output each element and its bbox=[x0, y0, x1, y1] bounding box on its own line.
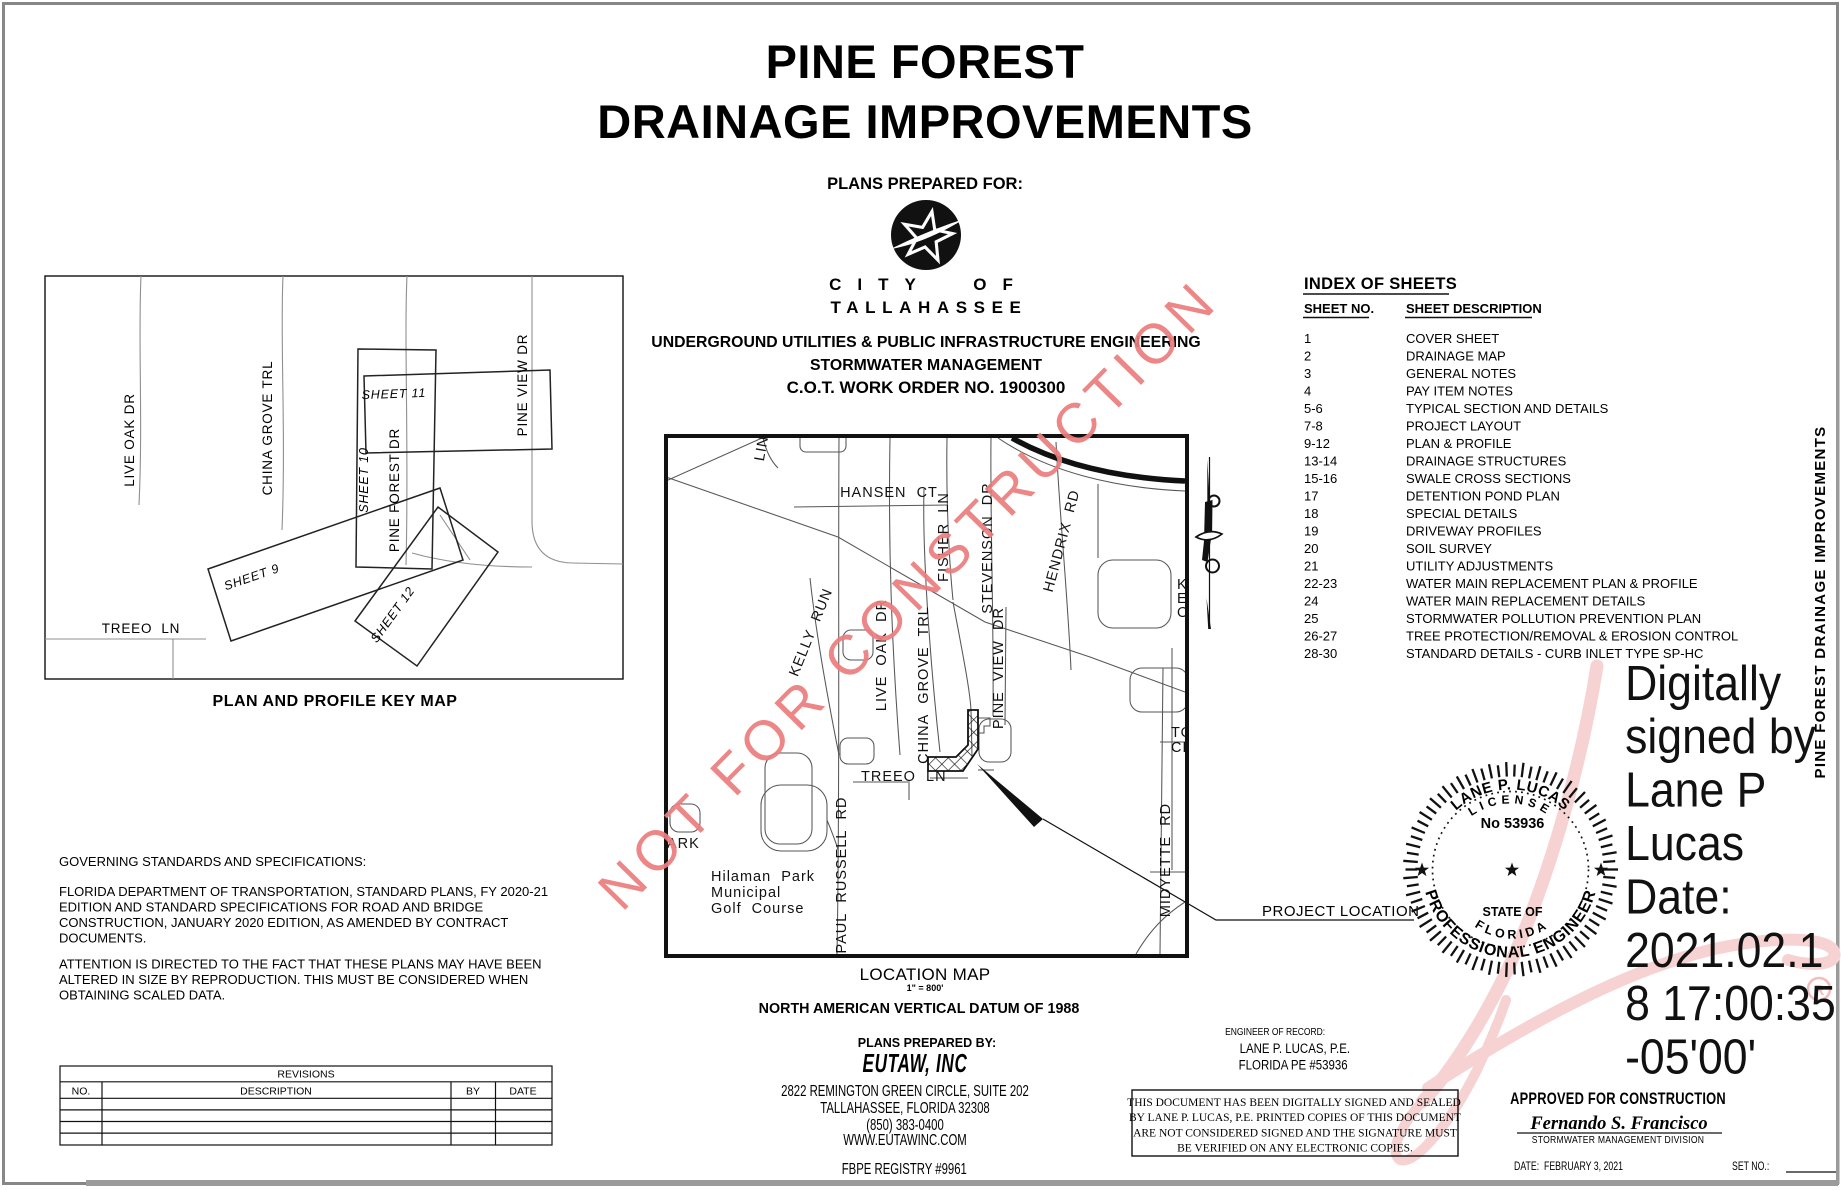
svg-text:26-27: 26-27 bbox=[1304, 629, 1337, 644]
svg-text:FBPE REGISTRY #9961: FBPE REGISTRY #9961 bbox=[842, 1159, 967, 1177]
svg-text:SOIL SURVEY: SOIL SURVEY bbox=[1406, 541, 1492, 556]
svg-text:ARE NOT CONSIDERED SIGNED AND: ARE NOT CONSIDERED SIGNED AND THE SIGNAT… bbox=[1133, 1127, 1457, 1139]
svg-text:DOCUMENTS.: DOCUMENTS. bbox=[59, 931, 146, 946]
svg-text:EUTAW, INC: EUTAW, INC bbox=[862, 1048, 967, 1078]
svg-text:INDEX OF SHEETS: INDEX OF SHEETS bbox=[1304, 275, 1457, 293]
svg-text:18: 18 bbox=[1304, 506, 1318, 521]
svg-text:19: 19 bbox=[1304, 524, 1318, 539]
svg-text:PAUL RUSSELL RD: PAUL RUSSELL RD bbox=[834, 797, 850, 954]
svg-text:Hilaman Park: Hilaman Park bbox=[711, 869, 815, 885]
svg-text:25: 25 bbox=[1304, 611, 1318, 626]
svg-text:24: 24 bbox=[1304, 594, 1318, 609]
svg-text:PROJECT LAYOUT: PROJECT LAYOUT bbox=[1406, 419, 1521, 434]
svg-text:NORTH AMERICAN VERTICAL DATUM: NORTH AMERICAN VERTICAL DATUM OF 1988 bbox=[759, 1001, 1080, 1017]
svg-text:SHEET DESCRIPTION: SHEET DESCRIPTION bbox=[1406, 301, 1542, 316]
svg-text:PROJECT LOCATION: PROJECT LOCATION bbox=[1262, 903, 1419, 920]
svg-text:WATER MAIN REPLACEMENT PLAN &: WATER MAIN REPLACEMENT PLAN & PROFILE bbox=[1406, 576, 1698, 591]
svg-text:7-8: 7-8 bbox=[1304, 419, 1323, 434]
svg-text:SET NO.:: SET NO.: bbox=[1732, 1160, 1769, 1174]
svg-text:TALLAHASSEE: TALLAHASSEE bbox=[831, 298, 1028, 317]
svg-text:No 53936: No 53936 bbox=[1481, 816, 1545, 832]
svg-text:1: 1 bbox=[1304, 331, 1311, 346]
svg-text:TYPICAL SECTION AND DETAILS: TYPICAL SECTION AND DETAILS bbox=[1406, 401, 1609, 416]
svg-text:FLORIDA DEPARTMENT OF TRANSPOR: FLORIDA DEPARTMENT OF TRANSPORTATION, ST… bbox=[59, 884, 548, 899]
svg-text:HANSEN CT: HANSEN CT bbox=[840, 485, 938, 501]
svg-text:2: 2 bbox=[1304, 349, 1311, 364]
svg-text:WATER MAIN REPLACEMENT DETAILS: WATER MAIN REPLACEMENT DETAILS bbox=[1406, 594, 1646, 609]
svg-text:DATE: FEBRUARY 3, 2021: DATE: FEBRUARY 3, 2021 bbox=[1514, 1160, 1623, 1174]
svg-text:15-16: 15-16 bbox=[1304, 471, 1337, 486]
svg-text:PINE FOREST: PINE FOREST bbox=[766, 35, 1085, 88]
svg-text:CITY OF: CITY OF bbox=[829, 275, 1029, 294]
svg-text:PINE VIEW DR: PINE VIEW DR bbox=[515, 334, 530, 437]
svg-text:TREEO LN: TREEO LN bbox=[861, 769, 947, 785]
svg-text:3: 3 bbox=[1304, 366, 1311, 381]
svg-text:1" = 800': 1" = 800' bbox=[907, 983, 944, 993]
svg-text:8 17:00:35: 8 17:00:35 bbox=[1625, 976, 1836, 1030]
svg-text:17: 17 bbox=[1304, 489, 1318, 504]
svg-text:ALTERED IN SIZE BY REPRODUCTIO: ALTERED IN SIZE BY REPRODUCTION. THIS MU… bbox=[59, 972, 528, 987]
svg-text:Lane P: Lane P bbox=[1625, 763, 1766, 817]
svg-text:APPROVED FOR CONSTRUCTION: APPROVED FOR CONSTRUCTION bbox=[1510, 1091, 1726, 1109]
svg-text:LIVE OAK DR: LIVE OAK DR bbox=[122, 393, 137, 487]
svg-text:28-30: 28-30 bbox=[1304, 646, 1337, 661]
svg-text:STATE OF: STATE OF bbox=[1483, 905, 1543, 919]
svg-text:THIS DOCUMENT HAS BEEN DIGITAL: THIS DOCUMENT HAS BEEN DIGITALLY SIGNED … bbox=[1127, 1097, 1461, 1109]
svg-text:9-12: 9-12 bbox=[1304, 436, 1330, 451]
svg-text:13-14: 13-14 bbox=[1304, 454, 1337, 469]
svg-text:Date:: Date: bbox=[1625, 869, 1732, 923]
svg-text:UTILITY ADJUSTMENTS: UTILITY ADJUSTMENTS bbox=[1406, 559, 1553, 574]
svg-text:C.O.T. WORK ORDER NO. 1900300: C.O.T. WORK ORDER NO. 1900300 bbox=[787, 378, 1066, 397]
svg-text:SPECIAL DETAILS: SPECIAL DETAILS bbox=[1406, 506, 1518, 521]
svg-text:DRIVEWAY PROFILES: DRIVEWAY PROFILES bbox=[1406, 524, 1542, 539]
svg-text:Lucas: Lucas bbox=[1625, 816, 1744, 870]
svg-text:STORMWATER POLLUTION PREVENTIO: STORMWATER POLLUTION PREVENTION PLAN bbox=[1406, 611, 1701, 626]
svg-text:-05'00': -05'00' bbox=[1625, 1030, 1756, 1084]
svg-text:DRAINAGE IMPROVEMENTS: DRAINAGE IMPROVEMENTS bbox=[597, 95, 1253, 148]
svg-text:PINE FOREST DR: PINE FOREST DR bbox=[387, 428, 402, 552]
svg-text:Fernando S. Francisco: Fernando S. Francisco bbox=[1529, 1114, 1707, 1134]
svg-text:Municipal: Municipal bbox=[711, 885, 781, 901]
svg-text:SHEET NO.: SHEET NO. bbox=[1304, 301, 1374, 316]
svg-text:22-23: 22-23 bbox=[1304, 576, 1337, 591]
svg-text:Digitally: Digitally bbox=[1625, 656, 1782, 710]
svg-text:TALLAHASSEE, FLORIDA 32308: TALLAHASSEE, FLORIDA 32308 bbox=[820, 1098, 990, 1116]
svg-text:FLORIDA PE #53936: FLORIDA PE #53936 bbox=[1239, 1058, 1348, 1073]
svg-text:GENERAL NOTES: GENERAL NOTES bbox=[1406, 366, 1516, 381]
svg-text:REVISIONS: REVISIONS bbox=[277, 1069, 334, 1081]
svg-text:STORMWATER MANAGEMENT: STORMWATER MANAGEMENT bbox=[810, 357, 1042, 374]
svg-text:BE VERIFIED ON ANY ELECTRONIC: BE VERIFIED ON ANY ELECTRONIC COPIES. bbox=[1177, 1143, 1413, 1155]
svg-text:PLAN & PROFILE: PLAN & PROFILE bbox=[1406, 436, 1512, 451]
svg-text:PLAN AND PROFILE KEY MAP: PLAN AND PROFILE KEY MAP bbox=[213, 693, 458, 710]
svg-text:DRAINAGE STRUCTURES: DRAINAGE STRUCTURES bbox=[1406, 454, 1567, 469]
svg-text:DETENTION POND PLAN: DETENTION POND PLAN bbox=[1406, 489, 1560, 504]
svg-text:GOVERNING STANDARDS AND SPECIF: GOVERNING STANDARDS AND SPECIFICATIONS: bbox=[59, 854, 366, 869]
svg-text:NO.: NO. bbox=[72, 1086, 91, 1098]
svg-text:STORMWATER MANAGEMENT DIVISION: STORMWATER MANAGEMENT DIVISION bbox=[1532, 1134, 1704, 1146]
svg-text:PAY ITEM NOTES: PAY ITEM NOTES bbox=[1406, 384, 1513, 399]
svg-text:Golf Course: Golf Course bbox=[711, 901, 804, 917]
svg-text:EDITION AND STANDARD SPECIFICA: EDITION AND STANDARD SPECIFICATIONS FOR … bbox=[59, 900, 484, 915]
svg-text:ATTENTION IS DIRECTED TO THE F: ATTENTION IS DIRECTED TO THE FACT THAT T… bbox=[59, 957, 542, 972]
svg-text:SHEET 10: SHEET 10 bbox=[357, 447, 371, 512]
svg-text:PLANS PREPARED FOR:: PLANS PREPARED FOR: bbox=[827, 175, 1023, 193]
svg-text:OBTAINING SCALED DATA.: OBTAINING SCALED DATA. bbox=[59, 988, 225, 1003]
svg-text:MIDYETTE RD: MIDYETTE RD bbox=[1158, 803, 1174, 917]
svg-text:ENGINEER OF RECORD:: ENGINEER OF RECORD: bbox=[1225, 1026, 1325, 1037]
svg-text:DRAINAGE MAP: DRAINAGE MAP bbox=[1406, 349, 1506, 364]
svg-text:PINE VIEW DR: PINE VIEW DR bbox=[991, 607, 1007, 729]
svg-text:COVER SHEET: COVER SHEET bbox=[1406, 331, 1499, 346]
svg-text:WWW.EUTAWINC.COM: WWW.EUTAWINC.COM bbox=[843, 1130, 967, 1148]
svg-text:BY LANE P. LUCAS, P.E. PRINTE: BY LANE P. LUCAS, P.E. PRINTED COPIES OF… bbox=[1129, 1112, 1461, 1124]
svg-text:20: 20 bbox=[1304, 541, 1318, 556]
svg-text:CHINA GROVE TRL: CHINA GROVE TRL bbox=[916, 606, 932, 764]
svg-text:2021.02.1: 2021.02.1 bbox=[1625, 923, 1823, 977]
svg-text:TREE PROTECTION/REMOVAL & EROS: TREE PROTECTION/REMOVAL & EROSION CONTRO… bbox=[1406, 629, 1738, 644]
svg-text:CONSTRUCTION, JANUARY 2020 EDI: CONSTRUCTION, JANUARY 2020 EDITION, AS A… bbox=[59, 915, 508, 930]
svg-text:CHINA GROVE TRL: CHINA GROVE TRL bbox=[260, 361, 275, 496]
svg-text:SWALE CROSS SECTIONS: SWALE CROSS SECTIONS bbox=[1406, 471, 1571, 486]
svg-text:LOCATION MAP: LOCATION MAP bbox=[860, 965, 991, 984]
svg-text:2822 REMINGTON GREEN CIRCLE, S: 2822 REMINGTON GREEN CIRCLE, SUITE 202 bbox=[781, 1081, 1029, 1099]
svg-text:DESCRIPTION: DESCRIPTION bbox=[240, 1086, 312, 1098]
svg-text:TREEO LN: TREEO LN bbox=[102, 621, 180, 636]
svg-text:LANE P. LUCAS, P.E.: LANE P. LUCAS, P.E. bbox=[1240, 1041, 1350, 1056]
svg-text:21: 21 bbox=[1304, 559, 1318, 574]
svg-text:4: 4 bbox=[1304, 384, 1311, 399]
svg-text:DATE: DATE bbox=[509, 1086, 536, 1098]
svg-text:BY: BY bbox=[466, 1086, 480, 1098]
svg-text:SHEET 11: SHEET 11 bbox=[361, 386, 426, 402]
svg-text:signed by: signed by bbox=[1625, 709, 1816, 763]
svg-text:5-6: 5-6 bbox=[1304, 401, 1323, 416]
